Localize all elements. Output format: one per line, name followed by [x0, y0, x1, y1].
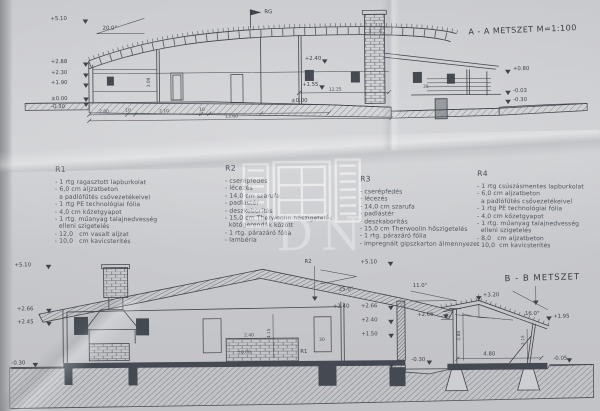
elevation-label: +2.45 [17, 319, 34, 325]
drawing-sheet: A - A METSZET M=1:100 RG 20.0° +5.10 +2.… [0, 0, 600, 411]
elevation-label: +5.10 [14, 262, 31, 268]
watermark-letters: DN [276, 206, 370, 261]
fireplace [85, 309, 139, 360]
watermark-logo: DN [232, 151, 413, 265]
legend-r4-title: R4 [477, 169, 597, 179]
elevation-label: +2.40 [361, 317, 378, 323]
dimension-label: 30 [319, 337, 325, 343]
elevation-label: -0.30 [411, 357, 426, 363]
layer-ref-label: R1 [300, 349, 307, 355]
dimension-label: 2.80 [456, 331, 462, 341]
elevation-label: +2.40 [333, 304, 350, 310]
elevation-label: ±0.00 [237, 349, 251, 355]
elevation-label: +2.66 [17, 306, 34, 312]
elevation-label: +2.66 [361, 303, 378, 309]
elevation-label: +3.20 [483, 292, 500, 298]
elevation-label: -0.30 [11, 360, 26, 366]
elevation-label: +1.50 [361, 331, 378, 337]
dimension-label: 2.40 [244, 332, 254, 338]
layer-legend: R1 - 1 rtg ragasztott lapburkolat - 6,0 … [0, 0, 599, 122]
legend-item: - 10,0 cm kavicsterítés [55, 238, 215, 246]
legend-r4: R4 - 1 rtg csúszásmentes lapburkolat - 6… [477, 169, 597, 250]
section-bb-title: B - B METSZET [504, 272, 580, 284]
dimension-label: 4.15 [266, 328, 272, 338]
porch-post [397, 301, 406, 360]
roof-angle-label: 11.0° [413, 283, 428, 289]
roof-angle-label: 25.0° [339, 287, 354, 293]
roof-hatch [39, 268, 453, 323]
dimension-label: 4.80 [483, 351, 496, 357]
legend-r1: R1 - 1 rtg ragasztott lapburkolat - 6,0 … [55, 165, 215, 246]
elevation-label: +1.95 [553, 314, 570, 320]
scanned-blueprint-page: A - A METSZET M=1:100 RG 20.0° +5.10 +2.… [0, 0, 600, 411]
legend-item: - 10,0 cm kavicsterítés [477, 242, 597, 250]
bottom-ground-hatch [9, 363, 593, 408]
dimension-label: 2.15 [520, 335, 526, 345]
legend-r1-title: R1 [55, 165, 215, 175]
elevation-label: -0.50 [361, 361, 376, 367]
legend-item: - 1 rtg PE technológiai fólia [477, 205, 597, 213]
elevation-label: +2.66 [417, 312, 434, 318]
roof-angle-label: 16.0° [525, 311, 540, 317]
elevation-label: -0.05 [553, 356, 567, 362]
